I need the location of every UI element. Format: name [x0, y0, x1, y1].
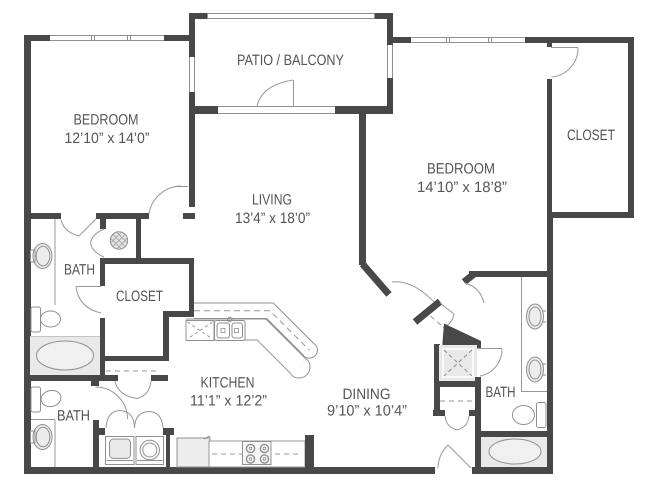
svg-text:DINING: DINING: [342, 386, 390, 403]
svg-text:KITCHEN: KITCHEN: [200, 374, 254, 391]
svg-text:11’1” x 12’2”: 11’1” x 12’2”: [190, 392, 267, 409]
svg-text:PATIO / BALCONY: PATIO / BALCONY: [237, 52, 344, 69]
svg-text:BATH: BATH: [57, 407, 90, 424]
svg-text:13’4” x 18’0”: 13’4” x 18’0”: [235, 210, 310, 227]
svg-text:CLOSET: CLOSET: [116, 288, 163, 305]
svg-text:BATH: BATH: [64, 261, 95, 278]
svg-text:14’10” x 18’8”: 14’10” x 18’8”: [417, 179, 507, 196]
svg-text:BEDROOM: BEDROOM: [427, 160, 495, 177]
svg-text:12’10” x 14’0”: 12’10” x 14’0”: [64, 130, 149, 147]
svg-text:CLOSET: CLOSET: [567, 127, 615, 144]
svg-text:BEDROOM: BEDROOM: [73, 111, 138, 128]
svg-text:BATH: BATH: [485, 384, 515, 401]
svg-text:LIVING: LIVING: [252, 191, 292, 208]
svg-text:9’10” x 10’4”: 9’10” x 10’4”: [327, 402, 407, 419]
